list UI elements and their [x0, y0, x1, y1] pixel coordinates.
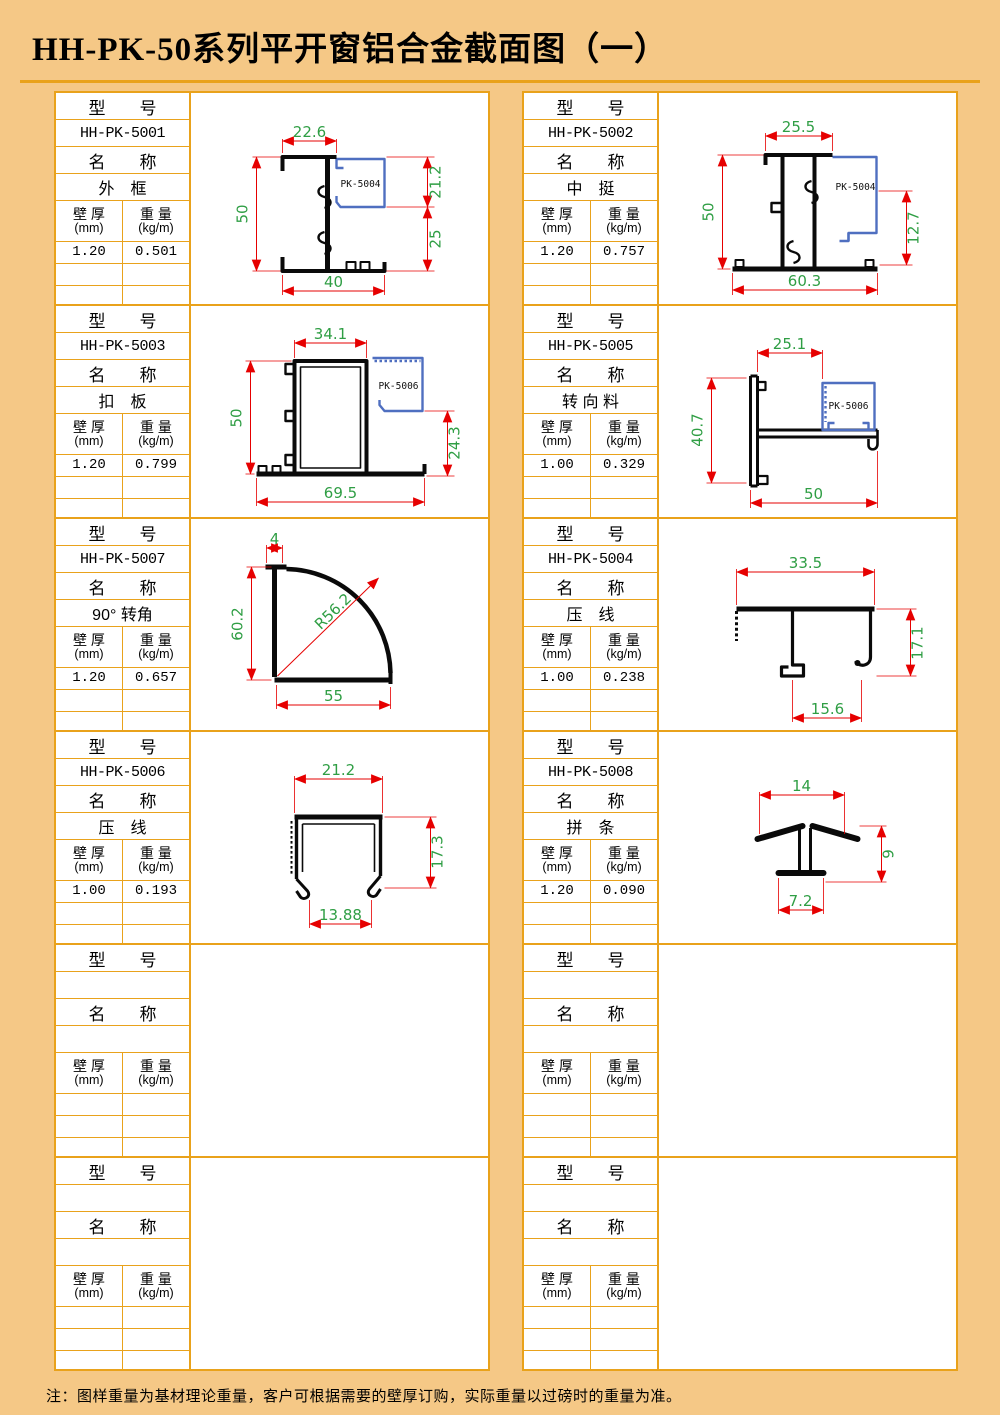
thickness-weight-values — [56, 1094, 189, 1116]
profile-cell-5006: 型 号 HH-PK-5006 名 称 压 线 壁 厚(mm) 重 量(kg/m)… — [54, 730, 490, 945]
model-header: 型 号 — [56, 306, 189, 333]
weight-label: 重 量 — [608, 633, 640, 648]
section-drawing-5001: PK-5004 22.6 50 21.2 25 — [191, 93, 488, 304]
section-svg-5006: 21.2 17.3 13.88 — [191, 732, 488, 943]
profile-detail — [855, 660, 861, 666]
empty-row — [524, 286, 657, 304]
section-drawing-5004: 33.5 17.1 15.6 — [659, 519, 956, 730]
grid-row-4: 型 号 HH-PK-5006 名 称 压 线 壁 厚(mm) 重 量(kg/m)… — [54, 730, 958, 945]
section-drawing-empty — [191, 945, 488, 1156]
section-svg-5003: PK-5006 34.1 50 24.3 69.5 — [191, 306, 488, 517]
thickness-unit: (mm) — [74, 861, 103, 874]
weight-value: 0.238 — [591, 668, 657, 689]
empty-row — [56, 1116, 189, 1138]
thickness-unit: (mm) — [74, 1287, 103, 1300]
empty-row — [56, 264, 189, 286]
profile-cell-5007: 型 号 HH-PK-5007 名 称 90° 转角 壁 厚(mm) 重 量(kg… — [54, 517, 490, 732]
dim-label: 40 — [324, 273, 343, 291]
section-drawing-empty — [659, 1158, 956, 1369]
profile-outline — [766, 155, 833, 165]
name-value: 拼 条 — [524, 813, 657, 840]
weight-value — [591, 1307, 657, 1328]
empty-row — [524, 903, 657, 925]
profile-detail — [361, 262, 370, 270]
name-header: 名 称 — [524, 1212, 657, 1239]
profile-detail — [866, 260, 874, 267]
extension-line — [718, 155, 764, 269]
model-header: 型 号 — [524, 519, 657, 546]
dim-label: 25.1 — [773, 335, 806, 353]
thickness-unit: (mm) — [542, 222, 571, 235]
profile-cell-empty: 型 号 名 称 壁 厚(mm) 重 量(kg/m) — [522, 943, 958, 1158]
model-value: HH-PK-5005 — [524, 333, 657, 360]
dim-label: 50 — [228, 408, 246, 427]
thickness-label: 壁 厚 — [73, 1059, 105, 1074]
profile-clip — [788, 241, 800, 263]
thickness-weight-header: 壁 厚(mm) 重 量(kg/m) — [524, 201, 657, 242]
extension-line — [758, 350, 823, 379]
dim-label: 50 — [234, 204, 252, 223]
weight-value — [123, 1094, 189, 1115]
thickness-value: 1.20 — [56, 455, 123, 476]
dim-label: 69.5 — [324, 484, 357, 502]
dim-label: 14 — [792, 777, 811, 795]
model-value — [524, 972, 657, 999]
empty-row — [524, 1138, 657, 1156]
thickness-value: 1.00 — [56, 881, 123, 902]
grid-row-6: 型 号 名 称 壁 厚(mm) 重 量(kg/m) — [54, 1156, 958, 1371]
name-header: 名 称 — [56, 360, 189, 387]
weight-value — [123, 1307, 189, 1328]
name-header: 名 称 — [56, 1212, 189, 1239]
thickness-label: 壁 厚 — [541, 846, 573, 861]
thickness-weight-values — [56, 1307, 189, 1329]
weight-value: 0.799 — [123, 455, 189, 476]
weight-label: 重 量 — [608, 420, 640, 435]
weight-value: 0.193 — [123, 881, 189, 902]
model-value: HH-PK-5008 — [524, 759, 657, 786]
model-header: 型 号 — [524, 93, 657, 120]
empty-row — [56, 690, 189, 712]
profile-detail — [869, 430, 878, 449]
profile-outline — [856, 611, 871, 665]
thickness-label: 壁 厚 — [73, 633, 105, 648]
thickness-weight-header: 壁 厚(mm) 重 量(kg/m) — [56, 201, 189, 242]
thickness-weight-values: 1.00 0.193 — [56, 881, 189, 903]
name-value: 压 线 — [56, 813, 189, 840]
profile-cell-5002: 型 号 HH-PK-5002 名 称 中 挺 壁 厚(mm) 重 量(kg/m)… — [522, 91, 958, 306]
thickness-label: 壁 厚 — [541, 1059, 573, 1074]
dim-label: 25.5 — [782, 118, 815, 136]
name-header: 名 称 — [524, 573, 657, 600]
weight-label: 重 量 — [608, 1059, 640, 1074]
dim-label: 21.2 — [427, 165, 445, 198]
dim-label: 4 — [270, 530, 280, 548]
extension-line — [295, 776, 383, 813]
dim-label: 7.2 — [789, 892, 813, 910]
empty-row — [56, 286, 189, 304]
thickness-unit: (mm) — [74, 222, 103, 235]
thickness-weight-header: 壁 厚(mm) 重 量(kg/m) — [524, 414, 657, 455]
weight-unit: (kg/m) — [606, 435, 641, 448]
model-value: HH-PK-5006 — [56, 759, 189, 786]
weight-unit: (kg/m) — [138, 648, 173, 661]
model-value: HH-PK-5003 — [56, 333, 189, 360]
model-header: 型 号 — [524, 306, 657, 333]
dim-label: 13.88 — [319, 906, 362, 924]
extension-line — [707, 378, 747, 483]
name-header: 名 称 — [56, 147, 189, 174]
thickness-weight-header: 壁 厚(mm) 重 量(kg/m) — [524, 1053, 657, 1094]
thickness-value: 1.00 — [524, 455, 591, 476]
name-value — [524, 1239, 657, 1266]
thickness-value — [524, 1307, 591, 1328]
insert-profile — [337, 159, 344, 168]
name-header: 名 称 — [56, 999, 189, 1026]
dim-label: 22.6 — [293, 123, 326, 141]
profile-foot — [297, 879, 309, 898]
profile-detail — [736, 260, 744, 267]
weight-label: 重 量 — [140, 207, 172, 222]
name-value: 90° 转角 — [56, 600, 189, 627]
extension-line — [247, 567, 272, 680]
weight-value: 0.090 — [591, 881, 657, 902]
empty-row — [524, 925, 657, 943]
spec-table: 型 号 名 称 壁 厚(mm) 重 量(kg/m) — [56, 945, 191, 1156]
section-drawing-5003: PK-5006 34.1 50 24.3 69.5 — [191, 306, 488, 517]
name-header: 名 称 — [524, 786, 657, 813]
empty-row — [56, 477, 189, 499]
profile-cell-5001: 型 号 HH-PK-5001 名 称 外 框 壁 厚(mm) 重 量(kg/m)… — [54, 91, 490, 306]
thickness-label: 壁 厚 — [541, 420, 573, 435]
profile-outline — [782, 611, 804, 676]
dim-label: 17.3 — [429, 835, 447, 868]
empty-row — [56, 499, 189, 517]
weight-label: 重 量 — [608, 846, 640, 861]
section-svg-5001: PK-5004 22.6 50 21.2 25 — [191, 93, 488, 304]
section-svg-5008: 14 9 7.2 — [659, 732, 956, 943]
insert-label: PK-5006 — [828, 401, 868, 412]
weight-value: 0.329 — [591, 455, 657, 476]
weight-unit: (kg/m) — [606, 861, 641, 874]
weight-value: 0.757 — [591, 242, 657, 263]
name-value: 扣 板 — [56, 387, 189, 414]
name-header: 名 称 — [524, 360, 657, 387]
model-header: 型 号 — [524, 945, 657, 972]
thickness-label: 壁 厚 — [541, 1272, 573, 1287]
section-drawing-5006: 21.2 17.3 13.88 — [191, 732, 488, 943]
dim-label: 21.2 — [322, 761, 355, 779]
insert-label: PK-5004 — [340, 179, 380, 190]
name-header: 名 称 — [56, 573, 189, 600]
thickness-label: 壁 厚 — [73, 207, 105, 222]
profile-arc — [287, 569, 391, 673]
model-header: 型 号 — [56, 732, 189, 759]
profile-cell-5004: 型 号 HH-PK-5004 名 称 压 线 壁 厚(mm) 重 量(kg/m)… — [522, 517, 958, 732]
spec-table: 型 号 HH-PK-5005 名 称 转 向 料 壁 厚(mm) 重 量(kg/… — [524, 306, 659, 517]
name-header: 名 称 — [524, 999, 657, 1026]
profile-outline — [751, 376, 758, 486]
spec-table: 型 号 名 称 壁 厚(mm) 重 量(kg/m) — [524, 945, 659, 1156]
empty-row — [524, 1329, 657, 1351]
thickness-unit: (mm) — [74, 435, 103, 448]
weight-label: 重 量 — [140, 633, 172, 648]
thickness-weight-header: 壁 厚(mm) 重 量(kg/m) — [56, 414, 189, 455]
thickness-unit: (mm) — [74, 1074, 103, 1087]
empty-row — [56, 1138, 189, 1156]
profile-detail — [347, 262, 356, 270]
spec-table: 型 号 HH-PK-5001 名 称 外 框 壁 厚(mm) 重 量(kg/m)… — [56, 93, 191, 304]
thickness-unit: (mm) — [74, 648, 103, 661]
thickness-weight-values: 1.00 0.238 — [524, 668, 657, 690]
thickness-value: 1.20 — [56, 242, 123, 263]
grid-row-5: 型 号 名 称 壁 厚(mm) 重 量(kg/m) — [54, 943, 958, 1158]
weight-unit: (kg/m) — [138, 222, 173, 235]
model-header: 型 号 — [56, 93, 189, 120]
thickness-label: 壁 厚 — [73, 846, 105, 861]
thickness-weight-values: 1.00 0.329 — [524, 455, 657, 477]
thickness-value — [524, 1094, 591, 1115]
weight-unit: (kg/m) — [138, 1287, 173, 1300]
thickness-label: 壁 厚 — [541, 633, 573, 648]
insert-label: PK-5006 — [378, 381, 418, 392]
thickness-weight-header: 壁 厚(mm) 重 量(kg/m) — [56, 1266, 189, 1307]
spec-table: 型 号 HH-PK-5003 名 称 扣 板 壁 厚(mm) 重 量(kg/m)… — [56, 306, 191, 517]
profile-cell-empty: 型 号 名 称 壁 厚(mm) 重 量(kg/m) — [54, 943, 490, 1158]
thickness-weight-values: 1.20 0.090 — [524, 881, 657, 903]
weight-label: 重 量 — [140, 1272, 172, 1287]
profile-cell-5005: 型 号 HH-PK-5005 名 称 转 向 料 壁 厚(mm) 重 量(kg/… — [522, 304, 958, 519]
dim-label: 60.3 — [788, 272, 821, 290]
profile-cell-empty: 型 号 名 称 壁 厚(mm) 重 量(kg/m) — [54, 1156, 490, 1371]
spec-table: 型 号 HH-PK-5006 名 称 压 线 壁 厚(mm) 重 量(kg/m)… — [56, 732, 191, 943]
section-svg-5002: PK-5004 25.5 50 12.7 60.3 — [659, 93, 956, 304]
name-value: 外 框 — [56, 174, 189, 201]
section-drawing-empty — [191, 1158, 488, 1369]
spec-table: 型 号 HH-PK-5002 名 称 中 挺 壁 厚(mm) 重 量(kg/m)… — [524, 93, 659, 304]
grid-row-2: 型 号 HH-PK-5003 名 称 扣 板 壁 厚(mm) 重 量(kg/m)… — [54, 304, 958, 519]
dim-label: 9 — [880, 849, 898, 859]
empty-row — [524, 264, 657, 286]
model-header: 型 号 — [524, 1158, 657, 1185]
insert-profile — [833, 157, 877, 241]
thickness-label: 壁 厚 — [541, 207, 573, 222]
thickness-weight-header: 壁 厚(mm) 重 量(kg/m) — [524, 627, 657, 668]
dim-label: 55 — [324, 687, 343, 705]
weight-unit: (kg/m) — [138, 435, 173, 448]
model-header: 型 号 — [56, 519, 189, 546]
spec-table: 型 号 HH-PK-5004 名 称 压 线 壁 厚(mm) 重 量(kg/m)… — [524, 519, 659, 730]
section-drawing-5008: 14 9 7.2 — [659, 732, 956, 943]
thickness-weight-header: 壁 厚(mm) 重 量(kg/m) — [524, 1266, 657, 1307]
thickness-unit: (mm) — [542, 1287, 571, 1300]
section-svg-5004: 33.5 17.1 15.6 — [659, 519, 956, 730]
empty-row — [524, 1351, 657, 1369]
thickness-label: 壁 厚 — [73, 420, 105, 435]
empty-row — [56, 903, 189, 925]
empty-row — [524, 712, 657, 730]
thickness-value: 1.20 — [56, 668, 123, 689]
spec-table: 型 号 HH-PK-5007 名 称 90° 转角 壁 厚(mm) 重 量(kg… — [56, 519, 191, 730]
weight-value: 0.501 — [123, 242, 189, 263]
spec-table: 型 号 HH-PK-5008 名 称 拼 条 壁 厚(mm) 重 量(kg/m)… — [524, 732, 659, 943]
weight-unit: (kg/m) — [138, 861, 173, 874]
weight-label: 重 量 — [608, 207, 640, 222]
extension-line — [737, 569, 875, 605]
dim-label: 34.1 — [314, 325, 347, 343]
dim-label: 40.7 — [689, 413, 707, 446]
profile-cell-empty: 型 号 名 称 壁 厚(mm) 重 量(kg/m) — [522, 1156, 958, 1371]
thickness-weight-values — [524, 1307, 657, 1329]
thickness-weight-header: 壁 厚(mm) 重 量(kg/m) — [524, 840, 657, 881]
weight-unit: (kg/m) — [606, 1074, 641, 1087]
profile-grid: 型 号 HH-PK-5001 名 称 外 框 壁 厚(mm) 重 量(kg/m)… — [54, 91, 958, 1371]
dim-label: 17.1 — [909, 626, 927, 659]
model-value: HH-PK-5002 — [524, 120, 657, 147]
dim-label: 33.5 — [789, 554, 822, 572]
thickness-weight-values — [524, 1094, 657, 1116]
thickness-value: 1.20 — [524, 242, 591, 263]
thickness-value: 1.20 — [524, 881, 591, 902]
empty-row — [524, 690, 657, 712]
model-value: HH-PK-5007 — [56, 546, 189, 573]
thickness-weight-header: 壁 厚(mm) 重 量(kg/m) — [56, 840, 189, 881]
grid-row-3: 型 号 HH-PK-5007 名 称 90° 转角 壁 厚(mm) 重 量(kg… — [54, 517, 958, 732]
dim-label: 50 — [700, 202, 718, 221]
thickness-weight-values: 1.20 0.757 — [524, 242, 657, 264]
thickness-value: 1.00 — [524, 668, 591, 689]
section-svg-5005: PK-5006 25.1 40.7 50 — [659, 306, 956, 517]
model-header: 型 号 — [56, 1158, 189, 1185]
profile-foot — [368, 876, 380, 896]
empty-row — [524, 477, 657, 499]
profile-inner-wall — [303, 824, 375, 872]
weight-value: 0.657 — [123, 668, 189, 689]
empty-row — [56, 712, 189, 730]
thickness-value — [56, 1307, 123, 1328]
weight-label: 重 量 — [140, 1059, 172, 1074]
dim-label: 60.2 — [229, 607, 247, 640]
thickness-weight-values: 1.20 0.501 — [56, 242, 189, 264]
name-value — [524, 1026, 657, 1053]
section-drawing-5002: PK-5004 25.5 50 12.7 60.3 — [659, 93, 956, 304]
empty-row — [56, 925, 189, 943]
profile-inner-wall — [301, 367, 361, 468]
spec-table: 型 号 名 称 壁 厚(mm) 重 量(kg/m) — [524, 1158, 659, 1369]
page-title: HH-PK-50系列平开窗铝合金截面图（一） — [20, 16, 980, 83]
weight-value — [591, 1094, 657, 1115]
dim-label: R56.2 — [311, 590, 355, 633]
model-header: 型 号 — [524, 732, 657, 759]
empty-row — [524, 499, 657, 517]
name-header: 名 称 — [524, 147, 657, 174]
section-drawing-empty — [659, 945, 956, 1156]
thickness-unit: (mm) — [542, 648, 571, 661]
section-drawing-5007: R56.2 4 60.2 55 — [191, 519, 488, 730]
name-value: 中 挺 — [524, 174, 657, 201]
name-value: 压 线 — [524, 600, 657, 627]
weight-label: 重 量 — [140, 846, 172, 861]
weight-unit: (kg/m) — [606, 222, 641, 235]
catalog-sheet: HH-PK-50系列平开窗铝合金截面图（一） 型 号 HH-PK-5001 名 … — [0, 0, 1000, 1415]
dim-label: 50 — [804, 485, 823, 503]
name-value — [56, 1026, 189, 1053]
weight-label: 重 量 — [140, 420, 172, 435]
thickness-unit: (mm) — [542, 1074, 571, 1087]
thickness-unit: (mm) — [542, 435, 571, 448]
model-value: HH-PK-5001 — [56, 120, 189, 147]
model-value — [56, 1185, 189, 1212]
model-value — [56, 972, 189, 999]
thickness-weight-values: 1.20 0.657 — [56, 668, 189, 690]
name-value — [56, 1239, 189, 1266]
profile-outline — [295, 361, 367, 474]
profile-cell-5003: 型 号 HH-PK-5003 名 称 扣 板 壁 厚(mm) 重 量(kg/m)… — [54, 304, 490, 519]
dim-label: 24.3 — [446, 426, 464, 459]
weight-unit: (kg/m) — [606, 648, 641, 661]
empty-row — [524, 1116, 657, 1138]
name-header: 名 称 — [56, 786, 189, 813]
thickness-value — [56, 1094, 123, 1115]
profile-stem — [800, 828, 811, 870]
section-drawing-5005: PK-5006 25.1 40.7 50 — [659, 306, 956, 517]
dim-label: 12.7 — [905, 211, 923, 244]
empty-row — [56, 1329, 189, 1351]
thickness-weight-header: 壁 厚(mm) 重 量(kg/m) — [56, 627, 189, 668]
empty-row — [56, 1351, 189, 1369]
weight-unit: (kg/m) — [138, 1074, 173, 1087]
dim-label: 15.6 — [811, 700, 844, 718]
name-value: 转 向 料 — [524, 387, 657, 414]
section-svg-5007: R56.2 4 60.2 55 — [191, 519, 488, 730]
insert-label: PK-5004 — [835, 182, 875, 193]
dim-label: 25 — [427, 229, 445, 248]
weight-label: 重 量 — [608, 1272, 640, 1287]
grid-row-1: 型 号 HH-PK-5001 名 称 外 框 壁 厚(mm) 重 量(kg/m)… — [54, 91, 958, 306]
model-header: 型 号 — [56, 945, 189, 972]
weight-unit: (kg/m) — [606, 1287, 641, 1300]
thickness-weight-values: 1.20 0.799 — [56, 455, 189, 477]
footnote: 注：图样重量为基材理论重量，客户可根据需要的壁厚订购，实际重量以过磅时的重量为准… — [46, 1385, 980, 1406]
model-value: HH-PK-5004 — [524, 546, 657, 573]
thickness-unit: (mm) — [542, 861, 571, 874]
profile-wing — [813, 826, 858, 839]
thickness-label: 壁 厚 — [73, 1272, 105, 1287]
profile-cell-5008: 型 号 HH-PK-5008 名 称 拼 条 壁 厚(mm) 重 量(kg/m)… — [522, 730, 958, 945]
profile-wing — [758, 826, 803, 839]
spec-table: 型 号 名 称 壁 厚(mm) 重 量(kg/m) — [56, 1158, 191, 1369]
model-value — [524, 1185, 657, 1212]
thickness-weight-header: 壁 厚(mm) 重 量(kg/m) — [56, 1053, 189, 1094]
